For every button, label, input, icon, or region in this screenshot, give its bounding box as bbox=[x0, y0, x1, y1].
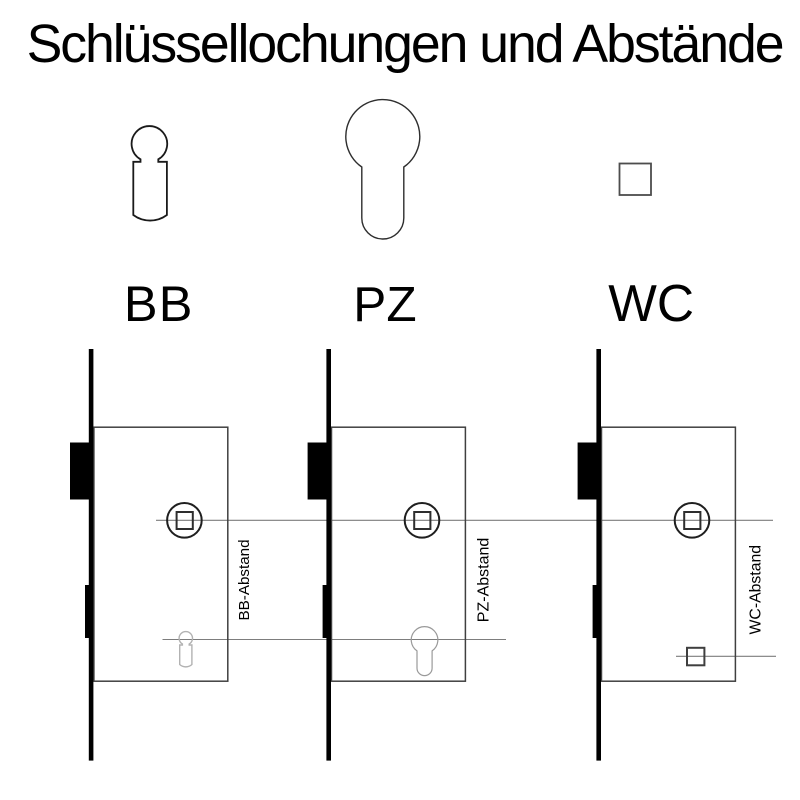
svg-text:BB-Abstand: BB-Abstand bbox=[236, 539, 253, 620]
svg-text:PZ-Abstand: PZ-Abstand bbox=[476, 538, 493, 622]
svg-text:BB: BB bbox=[124, 275, 194, 332]
svg-text:PZ: PZ bbox=[353, 277, 416, 332]
svg-text:WC-Abstand: WC-Abstand bbox=[747, 545, 764, 635]
svg-text:WC: WC bbox=[608, 274, 694, 332]
svg-text:Schlüssellochungen und Abständ: Schlüssellochungen und Abstände bbox=[27, 14, 783, 74]
